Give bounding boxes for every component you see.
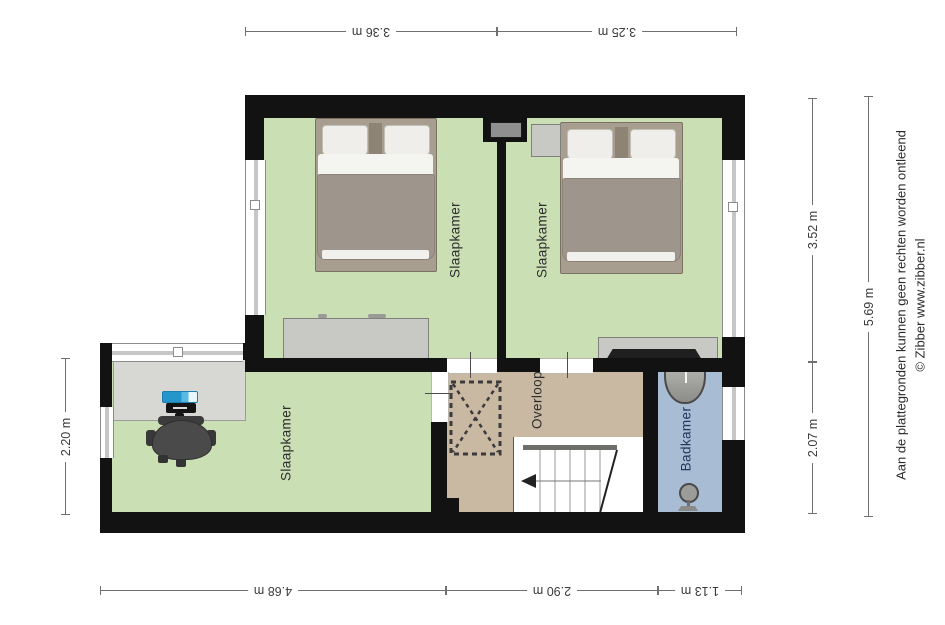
wall	[643, 362, 658, 512]
pillow	[630, 129, 676, 161]
bed-foot-sheet	[322, 250, 429, 259]
window-mullion	[250, 200, 260, 210]
dimension-label: 2.20 m	[59, 411, 73, 461]
wall	[497, 140, 506, 358]
faucet-icon	[685, 371, 687, 383]
pillow	[384, 125, 430, 157]
dimension-label: 3.25 m	[592, 25, 642, 39]
bed-duvet	[317, 174, 435, 260]
flue-icon	[490, 122, 522, 138]
window-mullion	[728, 202, 738, 212]
dresser-handle	[318, 314, 327, 318]
window	[245, 160, 266, 315]
room-label-bedroom-top-left: Slaapkamer	[448, 202, 463, 278]
dimension-bottom-2: 2.90 m	[446, 590, 658, 591]
room-label-landing: Overloop	[530, 371, 545, 429]
wall	[100, 512, 745, 533]
dimension-left: 2.20 m	[65, 358, 66, 515]
door-tick	[567, 352, 568, 378]
room-label-bedroom-top-right: Slaapkamer	[535, 202, 550, 278]
room-label-bathroom: Badkamer	[679, 407, 694, 472]
wall	[245, 95, 745, 118]
door-opening	[447, 358, 497, 374]
dimension-right-outer: 5.69 m	[868, 96, 869, 517]
shower-base	[678, 506, 698, 511]
monitor-icon	[162, 391, 198, 403]
wall	[447, 498, 459, 512]
room-label-bedroom-bottom-left: Slaapkamer	[279, 405, 294, 481]
nightstand-icon	[531, 124, 561, 157]
window	[100, 407, 114, 458]
wall	[245, 358, 447, 372]
keyboard-detail	[173, 407, 187, 409]
dimension-label: 3.52 m	[806, 205, 820, 255]
door-tick	[425, 393, 453, 394]
wall	[431, 422, 447, 512]
dimension-top-1: 3.36 m	[245, 31, 497, 32]
bed-foot-sheet	[567, 252, 675, 261]
dimension-label: 1.13 m	[675, 584, 725, 598]
dimension-label: 5.69 m	[862, 281, 876, 331]
dimension-label: 4.68 m	[248, 584, 298, 598]
office-chair-icon	[152, 420, 212, 460]
dimension-label: 2.07 m	[806, 413, 820, 463]
dimension-right-inner-2: 2.07 m	[812, 362, 813, 514]
dimension-top-2: 3.25 m	[497, 31, 737, 32]
door-tick	[470, 352, 471, 378]
wall	[593, 358, 745, 372]
bed-duvet	[562, 178, 681, 262]
double-bed-icon	[315, 118, 437, 272]
chair-leg	[158, 455, 168, 463]
stair-treads	[513, 450, 645, 513]
dimension-label: 3.36 m	[346, 25, 396, 39]
dimension-bottom-3: 1.13 m	[658, 590, 742, 591]
window-mullion	[173, 347, 183, 357]
roof-void-dashed-icon	[449, 380, 502, 456]
double-bed-icon	[560, 122, 683, 274]
window	[722, 160, 745, 337]
dimension-label: 2.90 m	[527, 584, 577, 598]
pillow	[322, 125, 368, 157]
floor-plan: Slaapkamer Slaapkamer Slaapkamer Overloo…	[0, 0, 945, 625]
dimension-right-inner-1: 3.52 m	[812, 98, 813, 362]
door-opening	[431, 372, 449, 422]
chair-leg	[176, 459, 186, 467]
pillow	[567, 129, 613, 161]
disclaimer-text: Aan de plattegronden kunnen geen rechten…	[894, 130, 909, 480]
wall	[497, 358, 540, 372]
window	[722, 387, 745, 440]
dresser-handle	[368, 314, 386, 318]
disclaimer-copyright: © Zibber www.zibber.nl	[913, 238, 928, 371]
dimension-bottom-1: 4.68 m	[100, 590, 446, 591]
